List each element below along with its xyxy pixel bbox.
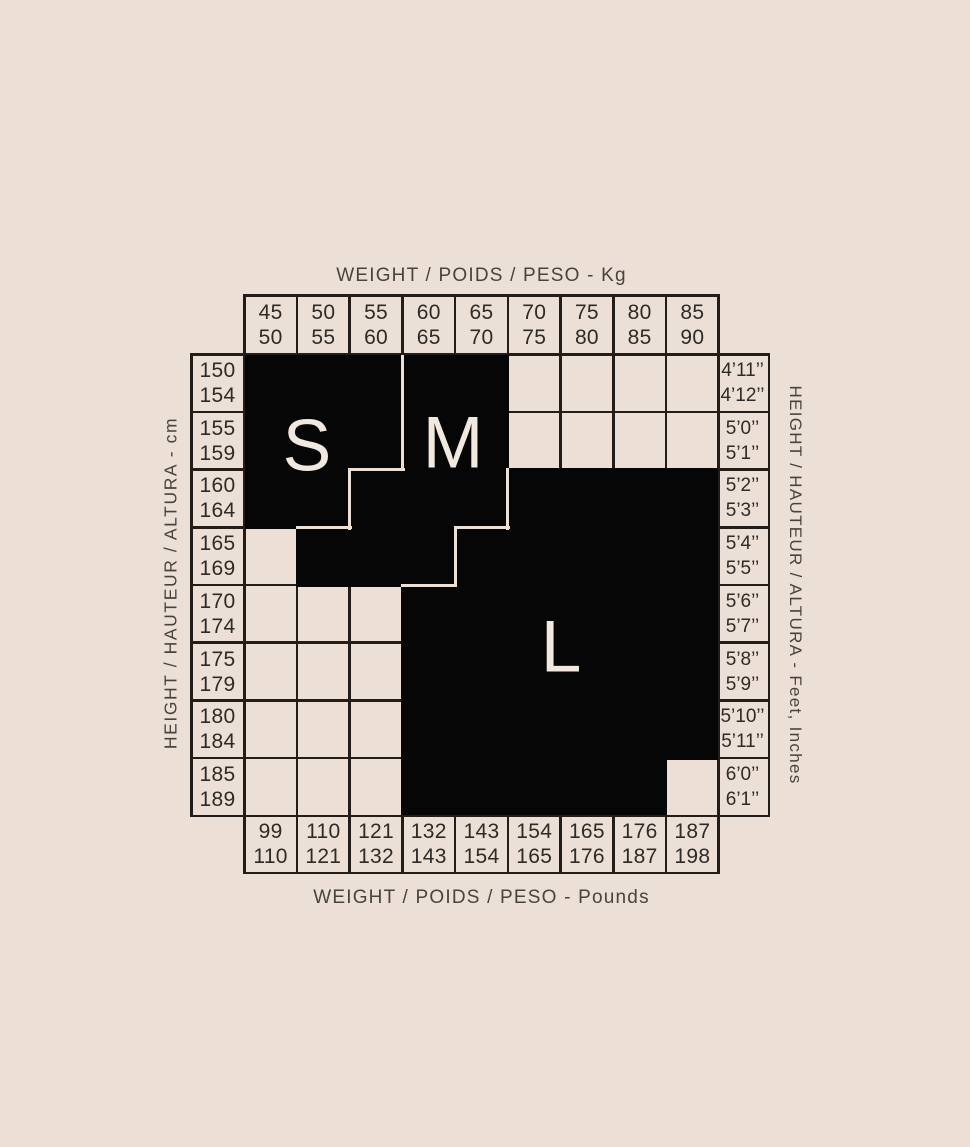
range-top: 4’11’’ (721, 358, 764, 383)
range-bottom: 5’9’’ (726, 672, 759, 697)
range-bottom: 5’3’’ (726, 498, 759, 523)
range-bottom: 5’11’’ (721, 729, 764, 754)
range-bottom: 184 (200, 729, 236, 754)
size-l-region (401, 757, 667, 815)
kg-range-cell: 7580 (562, 297, 612, 353)
range-top: 180 (200, 704, 236, 729)
range-bottom: 75 (522, 325, 546, 350)
range-top: 65 (470, 300, 494, 325)
range-top: 60 (417, 300, 441, 325)
range-top: 121 (358, 819, 394, 844)
range-top: 85 (680, 300, 704, 325)
range-top: 50 (311, 300, 335, 325)
range-top: 154 (516, 819, 552, 844)
cm-range-cell: 160164 (193, 471, 243, 526)
size-chart: WEIGHT / POIDS / PESO - Kg WEIGHT / POID… (0, 0, 970, 1147)
height-cm-axis-title: HEIGHT / HAUTEUR / ALTURA - cm (161, 417, 182, 749)
range-top: 143 (464, 819, 500, 844)
range-top: 5’6’’ (726, 589, 759, 614)
size-m-letter: M (423, 407, 484, 480)
ft-range-cell: 6’0’’6’1’’ (718, 759, 768, 814)
grid-cell (246, 702, 296, 757)
range-top: 99 (259, 819, 283, 844)
grid-cell (246, 586, 296, 641)
range-bottom: 60 (364, 325, 388, 350)
grid-cell (298, 759, 348, 814)
lb-range-cell: 165176 (562, 816, 612, 872)
range-top: 110 (306, 819, 340, 844)
range-bottom: 90 (680, 325, 704, 350)
region-divider (296, 526, 352, 529)
range-top: 45 (259, 300, 283, 325)
range-top: 187 (674, 819, 710, 844)
ft-range-cell: 5’4’’5’5’’ (718, 529, 768, 584)
range-top: 5’10’’ (720, 704, 764, 729)
range-bottom: 143 (411, 844, 447, 869)
kg-range-cell: 5560 (351, 297, 401, 353)
grid-cell (667, 759, 717, 814)
grid-cell (246, 644, 296, 699)
grid-cell (667, 413, 717, 468)
range-bottom: 174 (200, 614, 236, 639)
range-top: 70 (522, 300, 546, 325)
range-top: 155 (200, 416, 236, 441)
grid-cell (562, 413, 612, 468)
grid-cell (246, 529, 296, 584)
kg-range-cell: 6570 (456, 297, 506, 353)
range-top: 160 (200, 473, 236, 498)
range-bottom: 6’1’’ (726, 787, 759, 812)
kg-range-cell: 5055 (298, 297, 348, 353)
range-bottom: 55 (311, 325, 335, 350)
ft-range-cell: 5’8’’5’9’’ (718, 644, 768, 699)
ft-range-cell: 5’0’’5’1’’ (718, 413, 768, 468)
cm-range-cell: 170174 (193, 586, 243, 641)
grid-cell (351, 586, 401, 641)
grid-cell (667, 356, 717, 411)
range-bottom: 154 (200, 383, 236, 408)
lb-range-cell: 187198 (667, 816, 717, 872)
cm-range-cell: 165169 (193, 529, 243, 584)
lb-range-cell: 121132 (351, 816, 401, 872)
kg-range-cell: 8085 (615, 297, 665, 353)
range-top: 132 (411, 819, 447, 844)
region-divider (454, 526, 457, 587)
weight-pounds-axis-title: WEIGHT / POIDS / PESO - Pounds (243, 887, 720, 909)
range-bottom: 176 (569, 844, 605, 869)
range-top: 5’8’’ (726, 647, 759, 672)
height-cm-header-column: 150154 155159 160164 165169 170174 17517… (190, 353, 245, 817)
height-feet-axis-title: HEIGHT / HAUTEUR / ALTURA - Feet, Inches (785, 385, 805, 784)
cm-range-cell: 180184 (193, 702, 243, 757)
range-bottom: 50 (259, 325, 283, 350)
size-m-region (296, 526, 457, 587)
grid-cell (509, 356, 559, 411)
lb-range-cell: 99110 (246, 816, 296, 872)
lb-range-cell: 154165 (509, 816, 559, 872)
range-bottom: 4’12’’ (720, 383, 764, 408)
range-bottom: 179 (200, 672, 236, 697)
size-l-letter: L (541, 611, 582, 684)
ft-range-cell: 4’11’’4’12’’ (718, 356, 768, 411)
cm-range-cell: 150154 (193, 356, 243, 411)
range-top: 80 (628, 300, 652, 325)
range-bottom: 110 (253, 844, 287, 869)
lb-range-cell: 110121 (298, 816, 348, 872)
region-divider (506, 468, 509, 530)
grid-cell (298, 702, 348, 757)
region-divider (348, 468, 405, 471)
grid-cell (298, 586, 348, 641)
cm-range-cell: 175179 (193, 644, 243, 699)
grid-cell (615, 413, 665, 468)
weight-pounds-header-row: 99110 110121 121132 132143 143154 154165… (243, 813, 720, 874)
range-top: 6’0’’ (726, 762, 759, 787)
range-bottom: 189 (200, 787, 236, 812)
region-divider (401, 355, 404, 471)
kg-range-cell: 8590 (667, 297, 717, 353)
range-bottom: 187 (622, 844, 658, 869)
region-divider (454, 526, 510, 529)
size-l-region (506, 468, 718, 529)
lb-range-cell: 132143 (404, 816, 454, 872)
range-top: 176 (622, 819, 658, 844)
grid-cell (351, 644, 401, 699)
grid-cell (298, 644, 348, 699)
size-l-region (454, 526, 718, 587)
grid-cell (246, 759, 296, 814)
cm-range-cell: 185189 (193, 759, 243, 814)
weight-kg-axis-title: WEIGHT / POIDS / PESO - Kg (243, 265, 720, 287)
range-top: 175 (200, 647, 236, 672)
range-bottom: 70 (470, 325, 494, 350)
range-bottom: 154 (464, 844, 500, 869)
grid-cell (562, 356, 612, 411)
range-bottom: 159 (200, 441, 236, 466)
range-top: 5’4’’ (726, 531, 759, 556)
ft-range-cell: 5’2’’5’3’’ (718, 471, 768, 526)
range-bottom: 65 (417, 325, 441, 350)
grid-cell (351, 702, 401, 757)
size-s-letter: S (283, 410, 332, 483)
range-top: 185 (200, 762, 236, 787)
cm-range-cell: 155159 (193, 413, 243, 468)
range-top: 170 (200, 589, 236, 614)
lb-range-cell: 176187 (615, 816, 665, 872)
ft-range-cell: 5’6’’5’7’’ (718, 586, 768, 641)
range-top: 150 (200, 358, 236, 383)
range-top: 55 (364, 300, 388, 325)
weight-kg-header-row: 4550 5055 5560 6065 6570 7075 7580 8085 … (243, 294, 720, 355)
grid-cell (509, 413, 559, 468)
grid-cell (615, 356, 665, 411)
ft-range-cell: 5’10’’5’11’’ (718, 702, 768, 757)
grid-cell (351, 759, 401, 814)
range-top: 5’2’’ (726, 473, 759, 498)
range-bottom: 5’1’’ (726, 441, 759, 466)
range-bottom: 85 (628, 325, 652, 350)
range-bottom: 132 (358, 844, 394, 869)
kg-range-cell: 6065 (404, 297, 454, 353)
range-bottom: 198 (674, 844, 710, 869)
range-bottom: 121 (305, 844, 341, 869)
region-divider (401, 584, 457, 587)
range-bottom: 5’7’’ (726, 614, 759, 639)
range-top: 75 (575, 300, 599, 325)
range-bottom: 5’5’’ (726, 556, 759, 581)
lb-range-cell: 143154 (456, 816, 506, 872)
range-bottom: 165 (516, 844, 552, 869)
kg-range-cell: 4550 (246, 297, 296, 353)
range-top: 165 (569, 819, 605, 844)
range-bottom: 164 (200, 498, 236, 523)
range-top: 5’0’’ (726, 416, 759, 441)
height-feet-header-column: 4’11’’4’12’’ 5’0’’5’1’’ 5’2’’5’3’’ 5’4’’… (715, 353, 770, 817)
range-top: 165 (200, 531, 236, 556)
kg-range-cell: 7075 (509, 297, 559, 353)
range-bottom: 169 (200, 556, 236, 581)
range-bottom: 80 (575, 325, 599, 350)
region-divider (348, 468, 351, 530)
